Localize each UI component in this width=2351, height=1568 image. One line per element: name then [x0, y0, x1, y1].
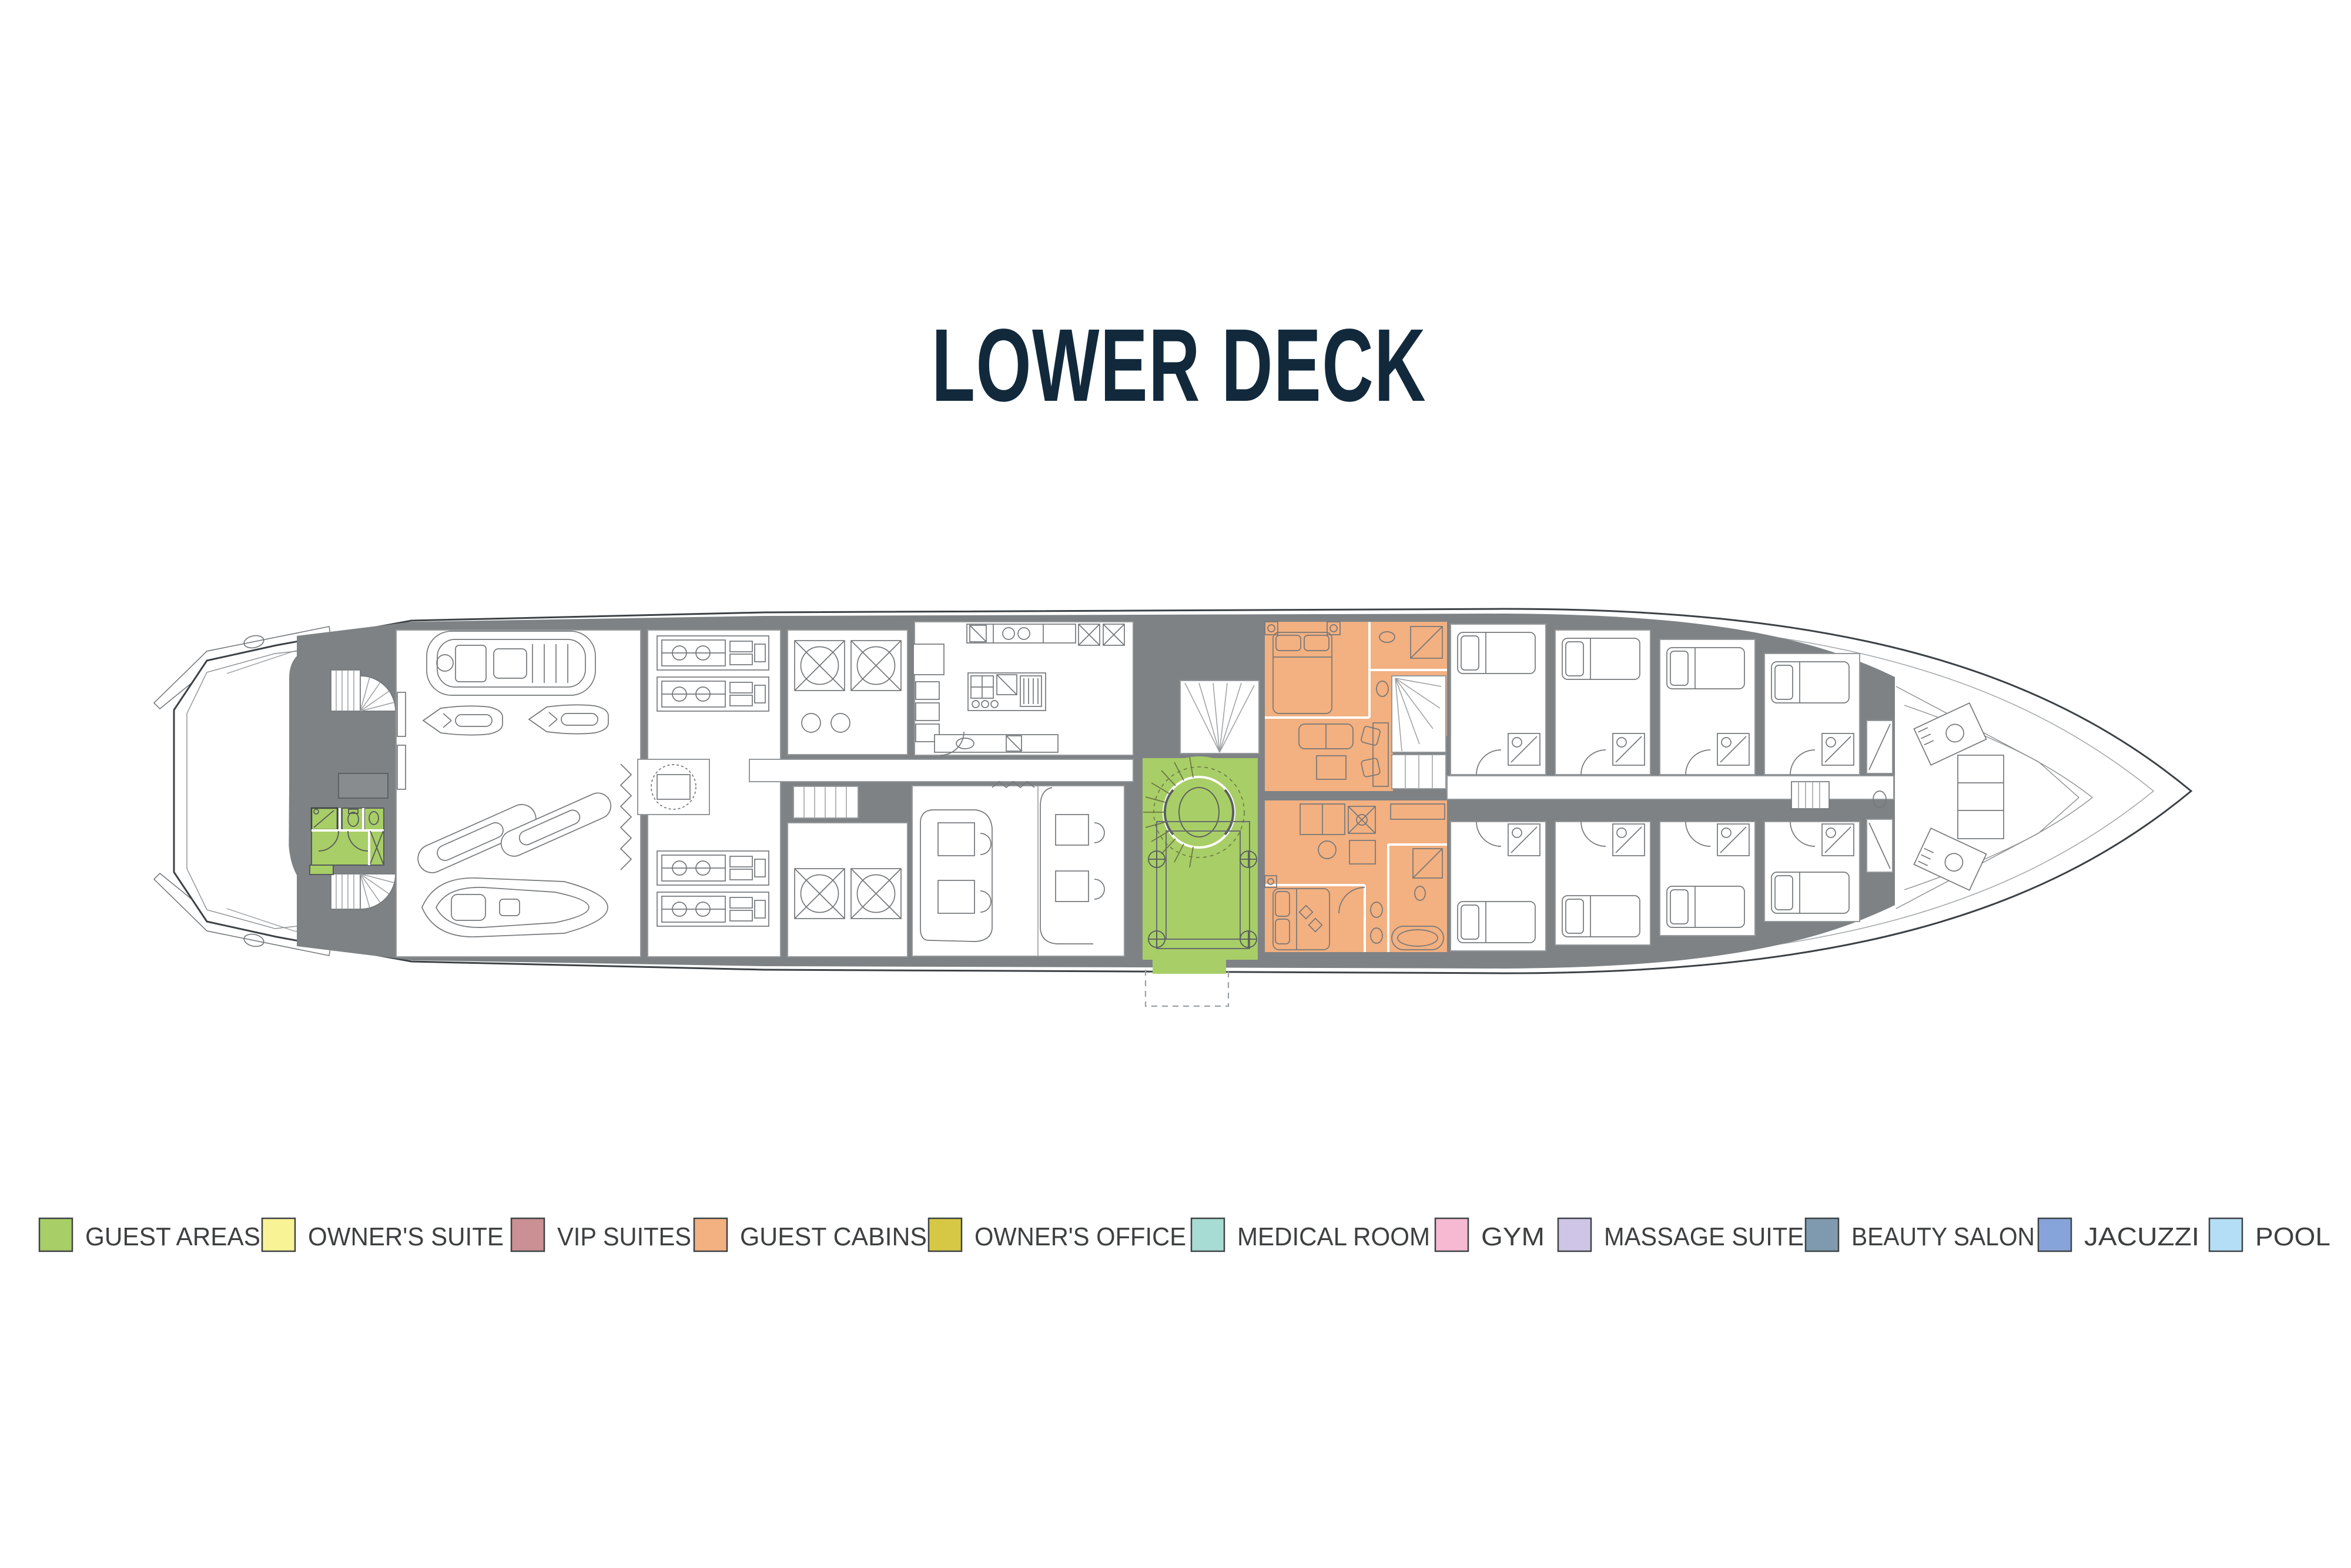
legend-item-beauty-salon: BEAUTY SALON	[1806, 1218, 2035, 1251]
legend-label: OWNER'S OFFICE	[974, 1222, 1186, 1251]
legend-item-vip-suites: VIP SUITES	[511, 1218, 691, 1251]
thruster-room	[638, 759, 709, 815]
legend-label: OWNER'S SUITE	[308, 1222, 504, 1251]
legend-swatch	[1435, 1218, 1468, 1251]
legend-swatch	[511, 1218, 544, 1251]
legend-item-massage-suite: MASSAGE SUITE	[1558, 1218, 1804, 1251]
shell-door-outline	[1146, 970, 1228, 1006]
legend-swatch	[1558, 1218, 1591, 1251]
legend-item-medical-room: MEDICAL ROOM	[1191, 1218, 1430, 1251]
legend-swatch	[694, 1218, 727, 1251]
crew-cabin	[1660, 639, 1755, 775]
central-fan-staircase	[1180, 681, 1259, 753]
legend-label: BEAUTY SALON	[1851, 1222, 2035, 1251]
legend-label: VIP SUITES	[557, 1222, 691, 1251]
page-title: LOWER DECK	[932, 308, 1426, 423]
legend-label: GUEST CABINS	[740, 1222, 927, 1251]
speedboat	[422, 878, 608, 937]
lower-deck-screenshot: LOWER DECK	[0, 0, 2351, 1568]
legend-label: JACUZZI	[2084, 1222, 2199, 1251]
legend-item-owners-office: OWNER'S OFFICE	[929, 1218, 1186, 1251]
legend-swatch	[262, 1218, 295, 1251]
crew-cabins	[1447, 624, 1894, 951]
crew-corridor-aft	[749, 759, 1133, 782]
legend: GUEST AREAS OWNER'S SUITE VIP SUITES GUE…	[39, 1218, 2330, 1251]
legend-swatch	[39, 1218, 72, 1251]
legend-item-pool: POOL	[2209, 1218, 2330, 1251]
legend-label: MASSAGE SUITE	[1604, 1222, 1804, 1251]
chain-locker	[1958, 755, 2004, 839]
crew-cabin	[1451, 624, 1546, 775]
legend-item-jacuzzi: JACUZZI	[2038, 1218, 2199, 1251]
legend-label: GYM	[1481, 1222, 1545, 1251]
crew-cabin	[1660, 822, 1755, 936]
galley-island	[968, 673, 1046, 711]
crew-cabin	[1555, 822, 1650, 945]
crew-cabin	[1451, 822, 1546, 951]
legend-item-guest-cabins: GUEST CABINS	[694, 1218, 927, 1251]
legend-swatch	[2209, 1218, 2242, 1251]
legend-label: MEDICAL ROOM	[1237, 1222, 1430, 1251]
crew-cabin	[1764, 654, 1860, 775]
fwd-stair	[1791, 782, 1829, 809]
legend-item-owners-suite: OWNER'S SUITE	[262, 1218, 504, 1251]
legend-swatch	[2038, 1218, 2071, 1251]
guest-area-stern-day-head	[310, 808, 384, 875]
crew-mess	[912, 786, 1124, 956]
upper-deck-stair-block	[1392, 676, 1446, 789]
legend-label: GUEST AREAS	[85, 1222, 260, 1251]
legend-swatch	[1191, 1218, 1224, 1251]
legend-swatch	[1806, 1218, 1838, 1251]
legend-label: POOL	[2255, 1222, 2330, 1251]
guest-cabin-port	[1265, 800, 1447, 952]
lower-deck-plan	[154, 609, 2191, 1006]
legend-item-guest-areas: GUEST AREAS	[39, 1218, 260, 1251]
crew-cabin	[1764, 822, 1860, 922]
aft-stair	[793, 786, 858, 818]
catamaran-tender	[427, 631, 595, 695]
legend-swatch	[929, 1218, 962, 1251]
crew-cabin	[1555, 630, 1650, 775]
legend-item-gym: GYM	[1435, 1218, 1545, 1251]
transom-berth	[339, 773, 388, 798]
guest-area-lobby-spiral-stair	[1143, 756, 1258, 974]
